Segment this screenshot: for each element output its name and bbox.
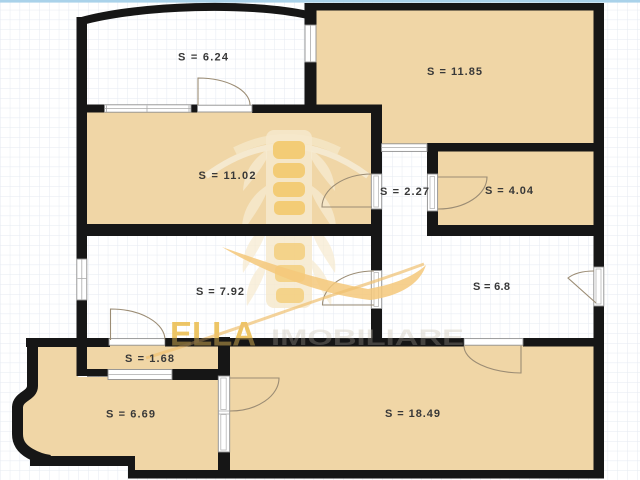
svg-text:ELLA: ELLA (170, 316, 256, 354)
svg-text:S = 6.24: S = 6.24 (178, 51, 229, 63)
svg-text:S = 18.49: S = 18.49 (385, 408, 440, 420)
svg-text:S = 11.02: S = 11.02 (199, 170, 256, 182)
svg-text:S = 6.8: S = 6.8 (473, 281, 510, 293)
svg-text:S = 7.92: S = 7.92 (196, 286, 244, 298)
svg-text:S = 4.04: S = 4.04 (485, 185, 534, 197)
svg-text:S = 11.85: S = 11.85 (427, 66, 482, 78)
